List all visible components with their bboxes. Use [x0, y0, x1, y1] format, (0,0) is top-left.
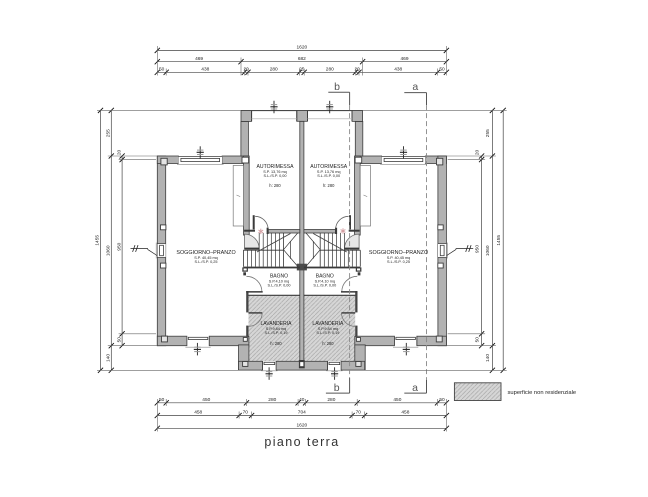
- svg-text:LAVANDERIA: LAVANDERIA: [261, 321, 293, 327]
- svg-text:S.L./S.P. 0,25: S.L./S.P. 0,25: [195, 260, 218, 264]
- svg-text:1060: 1060: [106, 245, 112, 256]
- svg-text:469: 469: [400, 56, 408, 62]
- svg-text:1060: 1060: [485, 245, 491, 256]
- svg-text:255: 255: [485, 129, 491, 137]
- svg-text:458: 458: [194, 410, 202, 416]
- svg-text:40: 40: [299, 397, 305, 403]
- svg-text:h: 280: h: 280: [270, 341, 282, 346]
- svg-text:469: 469: [195, 56, 203, 62]
- svg-text:S.L./S.P. 0,00: S.L./S.P. 0,00: [317, 174, 340, 178]
- svg-text:280: 280: [326, 67, 334, 73]
- svg-text:255: 255: [106, 129, 112, 137]
- svg-text:b: b: [334, 81, 340, 93]
- svg-text:950: 950: [116, 242, 122, 250]
- svg-text:S.L./S.P. 0,19: S.L./S.P. 0,19: [316, 331, 339, 335]
- svg-text:S.L./S.P. 0,25: S.L./S.P. 0,25: [387, 260, 410, 264]
- svg-text:a: a: [412, 81, 418, 93]
- svg-text:a: a: [412, 382, 418, 394]
- svg-text:1455: 1455: [95, 235, 101, 246]
- svg-text:438: 438: [394, 67, 402, 73]
- svg-text:450: 450: [202, 397, 210, 403]
- svg-text:S.L./S.P. 0,00: S.L./S.P. 0,00: [264, 174, 287, 178]
- svg-text:140: 140: [485, 354, 491, 362]
- svg-text:50: 50: [116, 337, 122, 343]
- svg-text:LAVANDERIA: LAVANDERIA: [312, 321, 344, 327]
- svg-text:70: 70: [356, 410, 362, 416]
- svg-text:140: 140: [106, 354, 112, 362]
- svg-text:S.L./S.P. 0,00: S.L./S.P. 0,00: [313, 283, 336, 287]
- svg-text:682: 682: [298, 56, 306, 62]
- svg-text:704: 704: [298, 410, 306, 416]
- svg-text:h: 280: h: 280: [323, 183, 335, 188]
- svg-text:950: 950: [475, 245, 481, 253]
- svg-text:h: 280: h: 280: [269, 183, 281, 188]
- svg-text:438: 438: [201, 67, 209, 73]
- svg-text:superficie non residenziale: superficie non residenziale: [508, 390, 577, 396]
- svg-text:1455: 1455: [496, 235, 502, 246]
- svg-text:50: 50: [159, 67, 165, 73]
- svg-text:S.L./S.P. 0,19: S.L./S.P. 0,19: [265, 331, 288, 335]
- svg-text:50: 50: [439, 397, 445, 403]
- svg-text:piano terra: piano terra: [264, 435, 339, 449]
- svg-text:280: 280: [268, 397, 276, 403]
- svg-text:50: 50: [439, 67, 445, 73]
- svg-text:20: 20: [116, 150, 122, 156]
- svg-text:b: b: [334, 382, 340, 394]
- svg-text:1620: 1620: [297, 45, 308, 51]
- svg-text:50: 50: [159, 397, 165, 403]
- svg-text:h: 280: h: 280: [322, 341, 334, 346]
- svg-text:450: 450: [393, 397, 401, 403]
- svg-text:280: 280: [270, 67, 278, 73]
- svg-text:280: 280: [327, 397, 335, 403]
- svg-text:S.L./S.P. 0,00: S.L./S.P. 0,00: [268, 283, 291, 287]
- svg-text:50: 50: [475, 337, 481, 343]
- svg-text:1620: 1620: [297, 423, 308, 429]
- svg-text:458: 458: [401, 410, 409, 416]
- svg-text:20: 20: [475, 150, 481, 156]
- svg-text:70: 70: [243, 410, 249, 416]
